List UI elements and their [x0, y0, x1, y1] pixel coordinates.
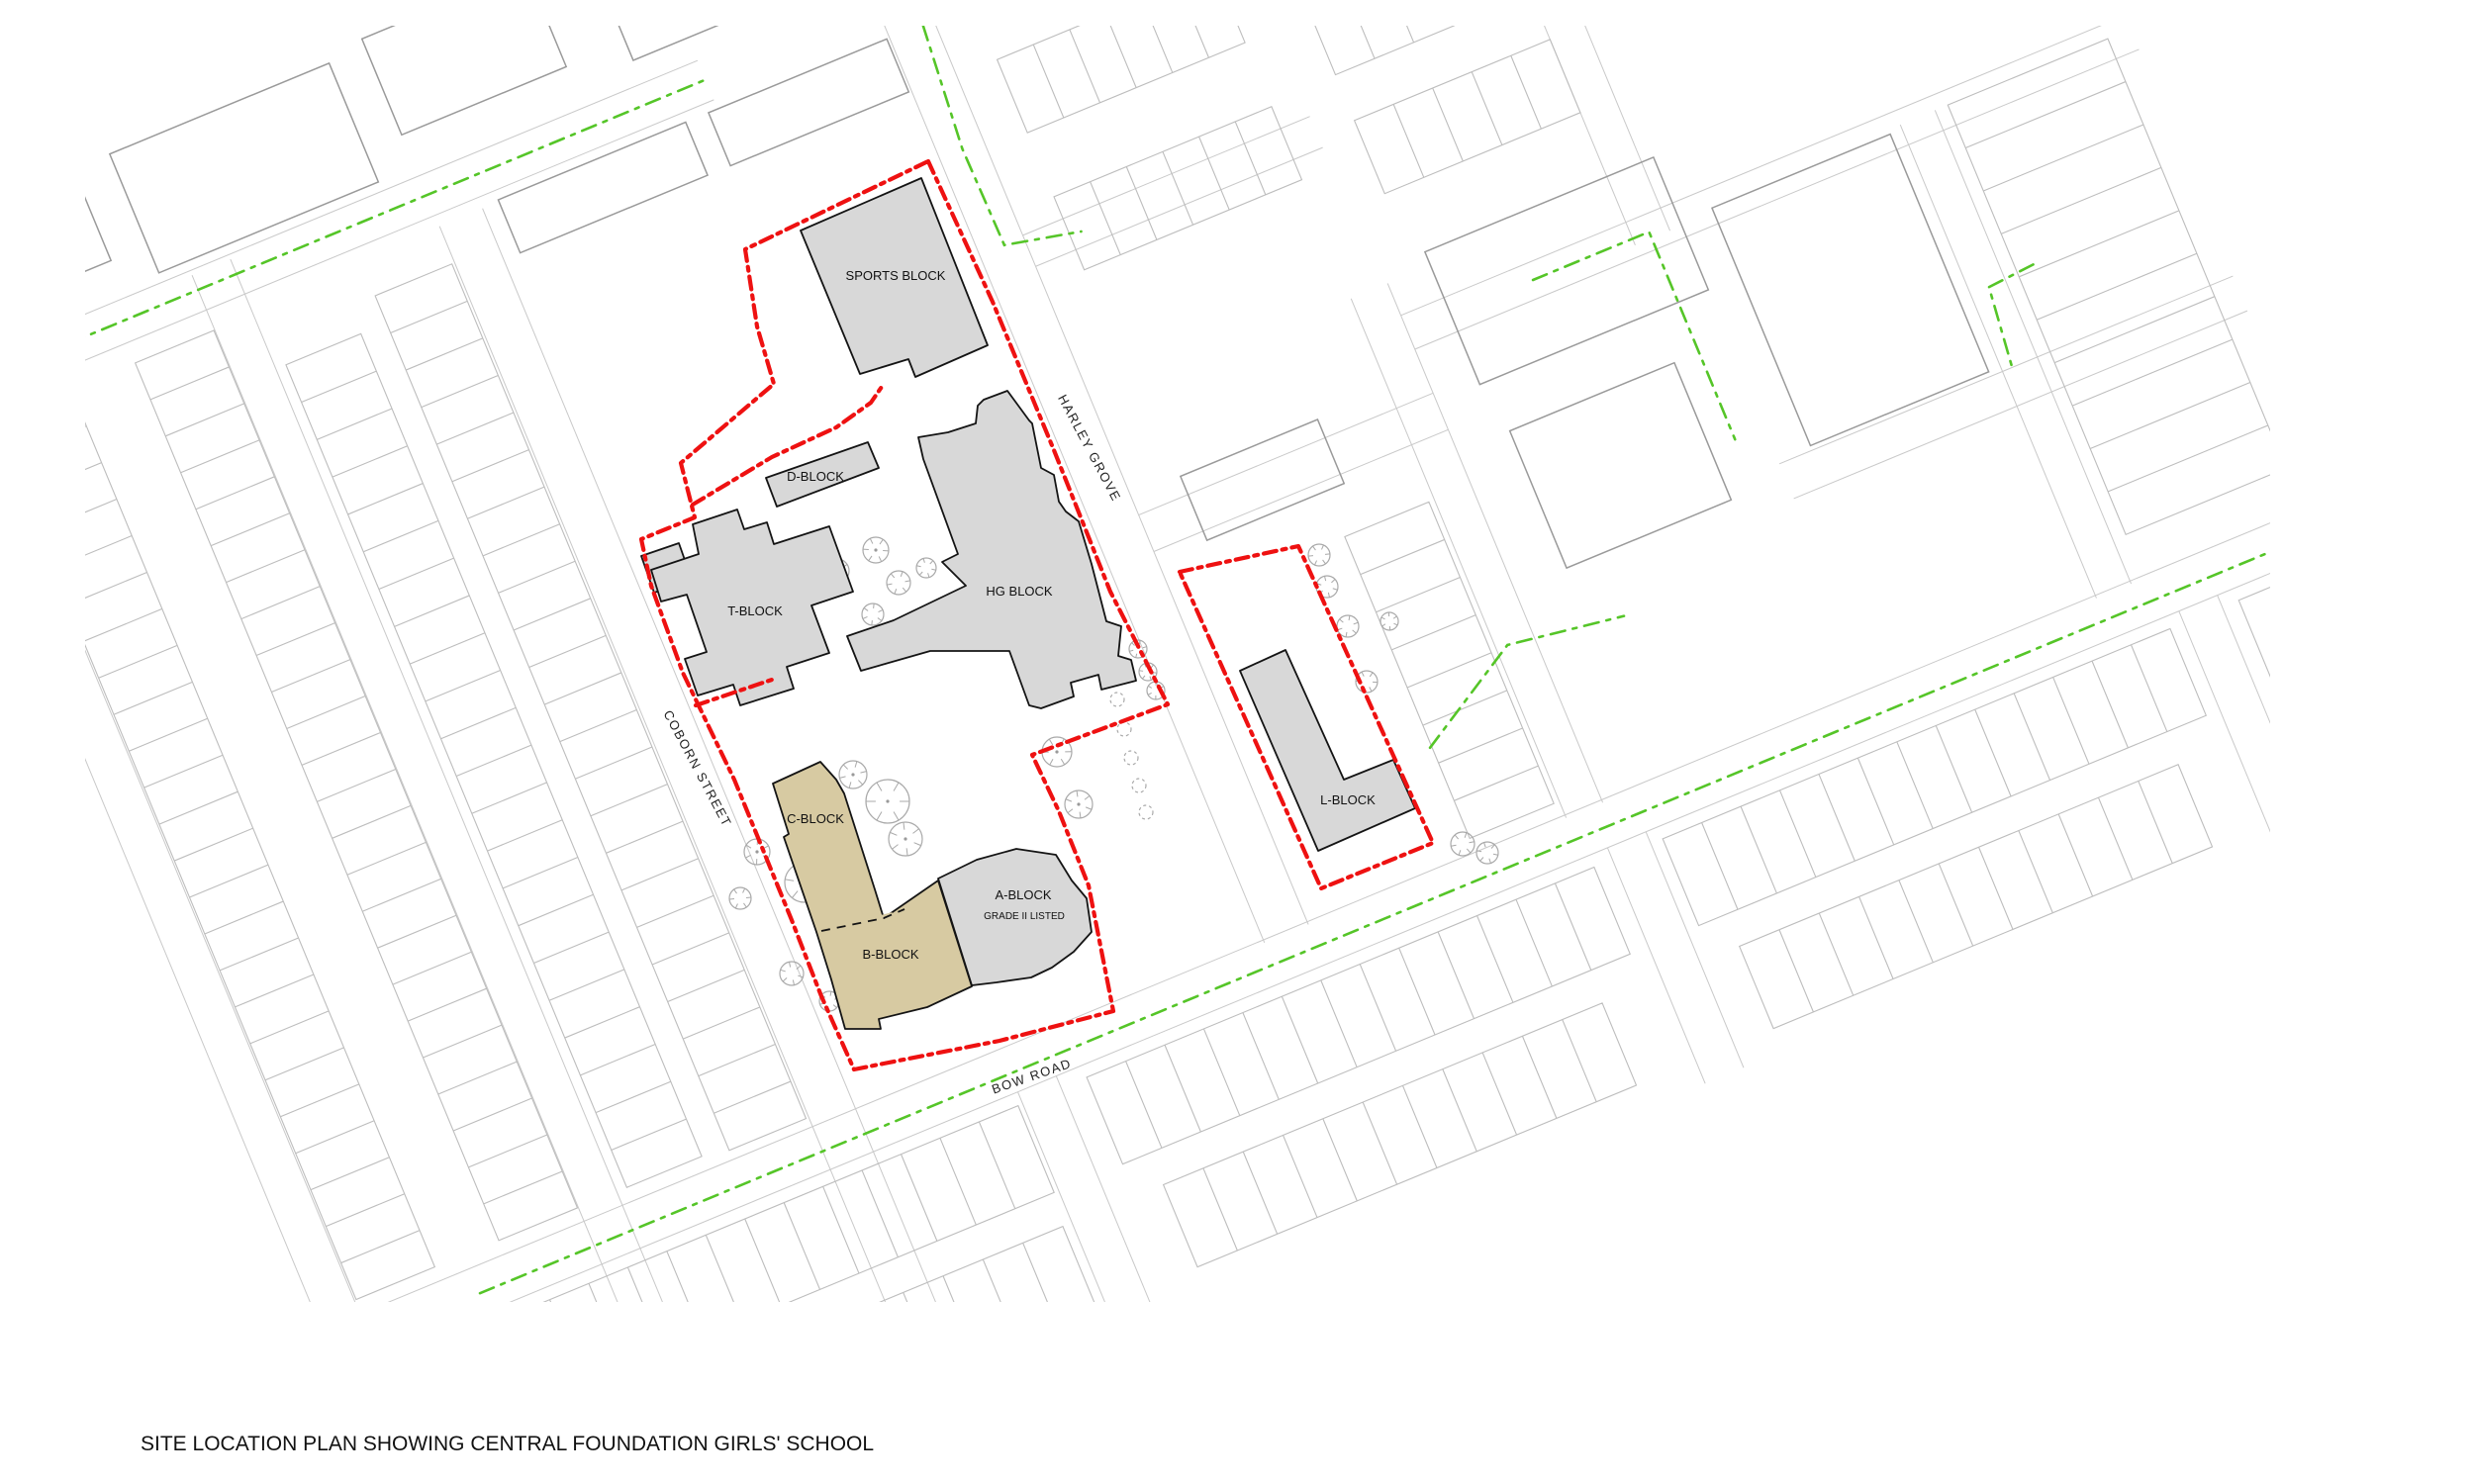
tree-icon: [1308, 544, 1330, 566]
street-edge-line: [0, 60, 698, 378]
tree-icon: [1139, 805, 1153, 819]
terrace-row: [1355, 40, 1580, 194]
street-edge-line: [1036, 147, 1323, 266]
street-edge-line: [2179, 611, 2277, 847]
background-building: [1425, 157, 1708, 385]
background-building: [598, 0, 771, 60]
terrace-row: [511, 1106, 1054, 1403]
street-edge-line: [1794, 311, 2247, 499]
tree-icon: [1065, 790, 1093, 818]
tree-icon: [1117, 722, 1131, 736]
tree-icon: [1110, 693, 1124, 706]
terrace-row: [1948, 39, 2286, 534]
page-title: SITE LOCATION PLAN SHOWING CENTRAL FOUND…: [141, 1433, 874, 1455]
street-edge-line: [1017, 1092, 1115, 1328]
green-boundary-line: [1533, 232, 1735, 487]
background-street-fabric: [0, 0, 2441, 1484]
street-edge-line: [1370, 0, 1636, 245]
tree-icon: [1451, 832, 1475, 856]
tree-icon: [1476, 842, 1498, 864]
background-building: [362, 0, 566, 135]
terrace-row: [1087, 868, 1630, 1164]
street-edge-line: [192, 275, 696, 1484]
label-c-block: C-BLOCK: [787, 811, 844, 826]
street-edge-line: [1779, 276, 2233, 464]
street-edge-line: [850, 0, 1308, 924]
background-building: [1181, 419, 1344, 540]
terrace-row: [1054, 107, 1301, 270]
terrace-row: [1303, 0, 1531, 75]
tree-icon: [839, 761, 867, 788]
label-l-block: L-BLOCK: [1320, 792, 1376, 807]
background-building: [110, 63, 378, 273]
street-edge-line: [324, 500, 2326, 1329]
street-edge-line: [1607, 848, 1705, 1083]
site-plan-map: SPORTS BLOCK D-BLOCK T-BLOCK HG BLOCK C-…: [0, 0, 2474, 1484]
street-edge-line: [0, 313, 472, 1484]
terrace-row: [1663, 628, 2206, 925]
background-building: [498, 123, 708, 253]
label-hg-block: HG BLOCK: [986, 584, 1053, 599]
street-edge-line: [341, 543, 2343, 1372]
tree-icon: [1132, 779, 1146, 792]
tree-icon: [1337, 615, 1359, 637]
street-edge-line: [1935, 110, 2131, 584]
street-edge-line: [1351, 299, 1566, 818]
label-sports-block: SPORTS BLOCK: [846, 268, 946, 283]
tree-icon: [863, 537, 889, 563]
conservation-boundary-green-lines: [39, 0, 2328, 1312]
terrace-row: [1164, 1003, 1637, 1267]
street-edge-line: [1646, 832, 1744, 1067]
tree-icon: [862, 603, 884, 625]
tree-icon: [887, 571, 910, 595]
street-edge-line: [0, 329, 433, 1484]
tree-icon: [1124, 751, 1138, 765]
street-label-coborn-street: COBORN STREET: [660, 707, 734, 829]
street-edge-line: [1900, 125, 2096, 599]
street-edge-line: [483, 209, 968, 1379]
terrace-row: [375, 264, 806, 1151]
street-edge-line: [2218, 596, 2316, 831]
terrace-row: [1740, 765, 2213, 1029]
label-b-block: B-BLOCK: [862, 947, 918, 962]
tree-icon: [889, 822, 922, 856]
tree-icon: [916, 558, 936, 578]
street-edge-line: [0, 100, 714, 417]
street-edge-line: [439, 227, 924, 1397]
label-a-block-grade: GRADE II LISTED: [984, 911, 1065, 922]
terrace-row: [0, 390, 434, 1300]
green-boundary-line: [1978, 264, 2068, 372]
background-building: [709, 39, 908, 165]
terrace-row: [998, 0, 1245, 133]
street-edge-line: [1387, 283, 1602, 802]
tree-icon: [866, 780, 909, 823]
street-label-harley-grove: HARLEY GROVE: [1055, 392, 1124, 504]
background-building: [1712, 135, 1989, 446]
label-a-block: A-BLOCK: [995, 887, 1051, 902]
street-edge-line: [1056, 1076, 1154, 1312]
tree-icon: [1380, 612, 1398, 630]
street-edge-line: [1023, 117, 1310, 235]
background-building: [1510, 363, 1732, 568]
label-t-block: T-BLOCK: [727, 603, 783, 618]
label-d-block: D-BLOCK: [787, 469, 844, 484]
site-plan-page: SPORTS BLOCK D-BLOCK T-BLOCK HG BLOCK C-…: [0, 0, 2474, 1484]
tree-icon: [729, 887, 751, 909]
